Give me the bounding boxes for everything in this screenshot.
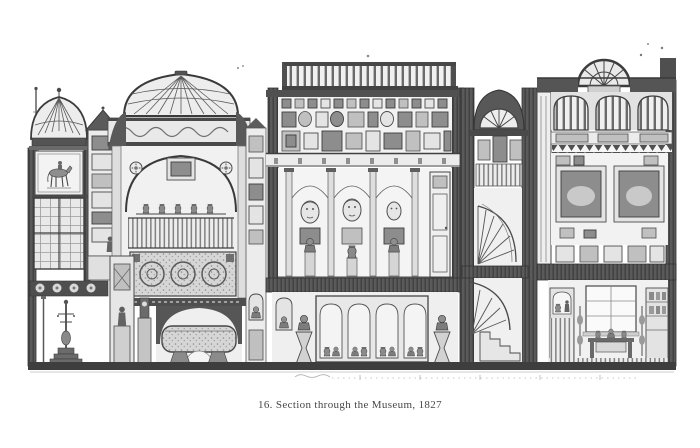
arched-windows	[551, 92, 672, 130]
left-pavilion-dome	[29, 88, 89, 150]
bookshelf	[646, 288, 668, 362]
candelabrum-icon	[50, 300, 82, 364]
fanlight-window	[470, 90, 528, 136]
scale-bar	[295, 375, 640, 380]
ground-study	[548, 280, 668, 366]
museum-section-engraving	[0, 0, 700, 448]
figure-plate: 16. Section through the Museum, 1827	[0, 0, 700, 448]
study-window	[583, 286, 639, 336]
figure-caption: 16. Section through the Museum, 1827	[0, 399, 700, 411]
dome-finial-icon	[57, 88, 61, 92]
right-house	[537, 43, 676, 366]
ground-line	[28, 362, 676, 372]
panel-band	[556, 246, 664, 262]
crypt-cabinets	[272, 292, 458, 364]
equestrian-relief	[35, 151, 83, 195]
glazed-bookcase	[32, 195, 88, 269]
picture-gallery	[237, 55, 464, 364]
roof-balustrade	[237, 55, 458, 91]
upper-drawing-room	[551, 153, 668, 245]
gallery-door	[430, 172, 450, 278]
narrow-stack	[246, 118, 266, 366]
scrollwork-panel	[130, 252, 236, 296]
gallery-floor-band	[266, 153, 464, 167]
stair-turret	[460, 88, 537, 366]
picture-frames-row-3	[282, 131, 451, 151]
gable-fanlight-window	[578, 60, 630, 94]
left-study-room	[30, 281, 108, 364]
spiral-staircase-lower	[470, 278, 522, 366]
spiral-staircase-upper	[474, 188, 522, 266]
dentil-band	[552, 145, 672, 153]
left-pavilion	[28, 88, 90, 366]
colonnade	[278, 168, 452, 278]
sarcophagus	[162, 326, 236, 364]
